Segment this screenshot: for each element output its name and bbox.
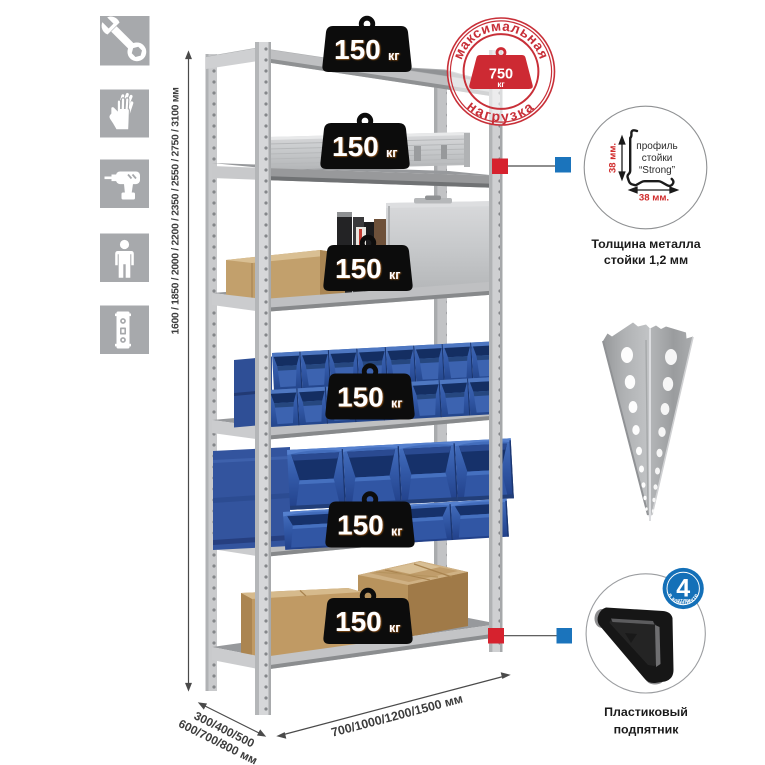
svg-text:1600 / 1850 / 2000 / 2200 / 23: 1600 / 1850 / 2000 / 2200 / 2350 / 2550 … xyxy=(171,87,182,334)
svg-text:кг: кг xyxy=(497,80,505,89)
svg-text:подпятник: подпятник xyxy=(614,723,680,737)
svg-text:профиль: профиль xyxy=(636,140,677,152)
svg-text:Пластиковый: Пластиковый xyxy=(604,705,688,719)
svg-text:38 мм.: 38 мм. xyxy=(639,193,669,204)
svg-text:стойки: стойки xyxy=(642,153,673,164)
svg-text:38 мм.: 38 мм. xyxy=(608,143,619,173)
svg-text:штуки: штуки xyxy=(676,598,690,603)
svg-text:стойки 1,2 мм: стойки 1,2 мм xyxy=(604,253,688,267)
svg-text:Толщина металла: Толщина металла xyxy=(591,237,700,251)
svg-text:“Strong”: “Strong” xyxy=(639,165,675,176)
